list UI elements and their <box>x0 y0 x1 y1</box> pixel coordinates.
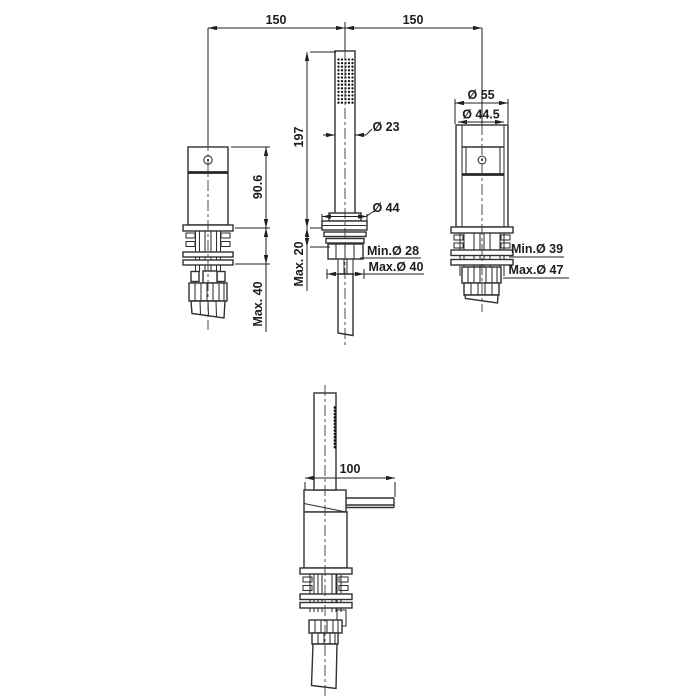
technical-drawing-canvas: 150 150 197 Ø 23 Ø 44 Min.Ø 28 Max.Ø 40 … <box>0 0 700 700</box>
dim-left-spacing: 150 <box>266 13 287 27</box>
hose-outline <box>312 644 338 689</box>
dim-handshower-length: 197 <box>292 127 306 148</box>
dim-valve-height: 90.6 <box>251 175 265 199</box>
dim-rosette-dia: Ø 44 <box>372 201 399 215</box>
dim-right-spacing: 150 <box>403 13 424 27</box>
dim-spout-reach: 100 <box>340 462 361 476</box>
handshower-figure <box>322 51 367 336</box>
dim-body-inner-dia: Ø 44.5 <box>462 108 500 122</box>
dim-deck-max-mid: Max. 20 <box>292 241 306 286</box>
spout-arm <box>346 498 394 508</box>
left-valve-figure <box>183 147 233 318</box>
dim-hole-max-mid: Max.Ø 40 <box>369 260 424 274</box>
mixer-dimension-drawing: 150 150 197 Ø 23 Ø 44 Min.Ø 28 Max.Ø 40 … <box>0 0 700 700</box>
dim-handshower-dia: Ø 23 <box>372 120 399 134</box>
dim-hole-min-right: Min.Ø 39 <box>511 242 563 256</box>
dim-hole-max-right: Max.Ø 47 <box>509 263 564 277</box>
dim-body-outer-dia: Ø 55 <box>467 88 494 102</box>
dim-deck-max-left: Max. 40 <box>251 281 265 326</box>
dim-hole-min-mid: Min.Ø 28 <box>367 244 419 258</box>
hose-outline <box>338 274 353 336</box>
side-view-figure <box>300 393 394 689</box>
dimension-labels: 150 150 197 Ø 23 Ø 44 Min.Ø 28 Max.Ø 40 … <box>251 13 563 476</box>
